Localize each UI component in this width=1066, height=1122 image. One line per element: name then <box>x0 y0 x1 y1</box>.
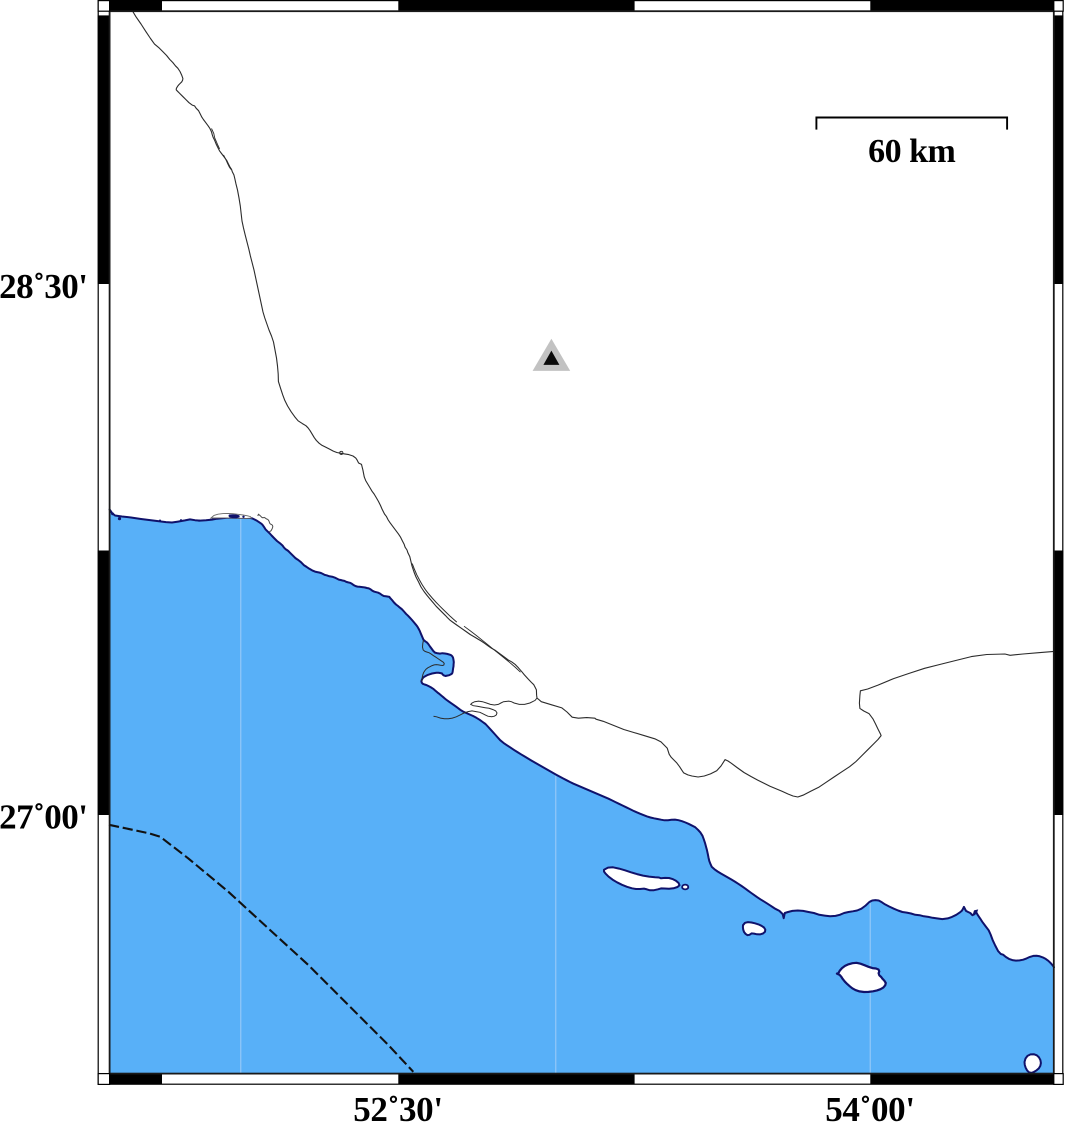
svg-text:60 km: 60 km <box>868 133 955 170</box>
svg-text:52˚30': 52˚30' <box>353 1090 443 1122</box>
svg-text:54˚00': 54˚00' <box>825 1090 915 1122</box>
svg-text:27˚00': 27˚00' <box>0 798 88 837</box>
svg-text:28˚30': 28˚30' <box>0 267 88 306</box>
